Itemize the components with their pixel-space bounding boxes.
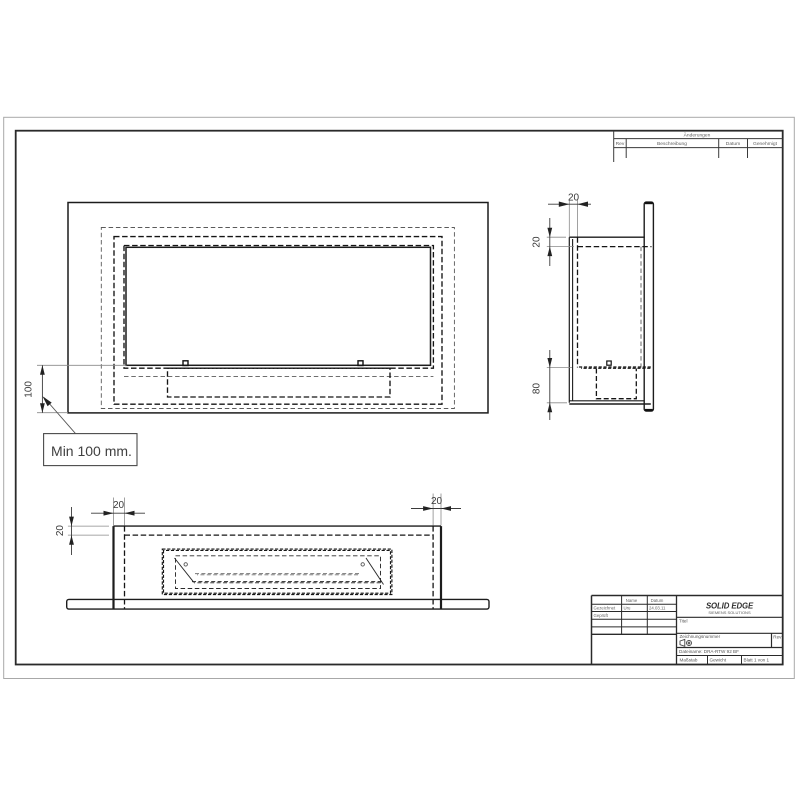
svg-text:100: 100 — [24, 381, 35, 398]
svg-text:24.03.11: 24.03.11 — [649, 606, 666, 611]
svg-text:20: 20 — [113, 500, 125, 511]
svg-text:Beschreibung: Beschreibung — [657, 141, 687, 147]
svg-text:Dateiname: DRA-RTW 92 BF: Dateiname: DRA-RTW 92 BF — [679, 649, 739, 654]
svg-text:Min 100 mm.: Min 100 mm. — [51, 443, 132, 459]
svg-text:Blatt 1 von 1: Blatt 1 von 1 — [744, 657, 770, 662]
svg-text:20: 20 — [431, 496, 443, 507]
svg-text:20: 20 — [55, 525, 66, 537]
svg-text:Datum: Datum — [726, 141, 740, 147]
svg-text:Zeichnungsnummer: Zeichnungsnummer — [680, 634, 721, 639]
svg-text:SIEMENS SOLUTIONS: SIEMENS SOLUTIONS — [708, 610, 751, 615]
svg-text:Datum: Datum — [651, 598, 664, 603]
svg-text:20: 20 — [532, 236, 543, 248]
svg-text:Genehmigt: Genehmigt — [753, 141, 778, 147]
svg-text:Uru: Uru — [624, 606, 632, 611]
svg-text:Gezeichnet: Gezeichnet — [594, 606, 617, 611]
svg-text:Titel: Titel — [679, 618, 688, 623]
svg-text:Name: Name — [626, 598, 638, 603]
svg-text:Änderungen: Änderungen — [684, 132, 711, 139]
svg-text:Rev: Rev — [773, 634, 782, 639]
svg-text:Gewicht: Gewicht — [710, 657, 727, 662]
svg-text:Geprüft: Geprüft — [594, 613, 609, 618]
svg-text:Maßstab: Maßstab — [680, 657, 698, 662]
svg-text:Rev: Rev — [616, 141, 625, 147]
svg-text:20: 20 — [568, 193, 580, 204]
svg-text:80: 80 — [532, 383, 543, 395]
